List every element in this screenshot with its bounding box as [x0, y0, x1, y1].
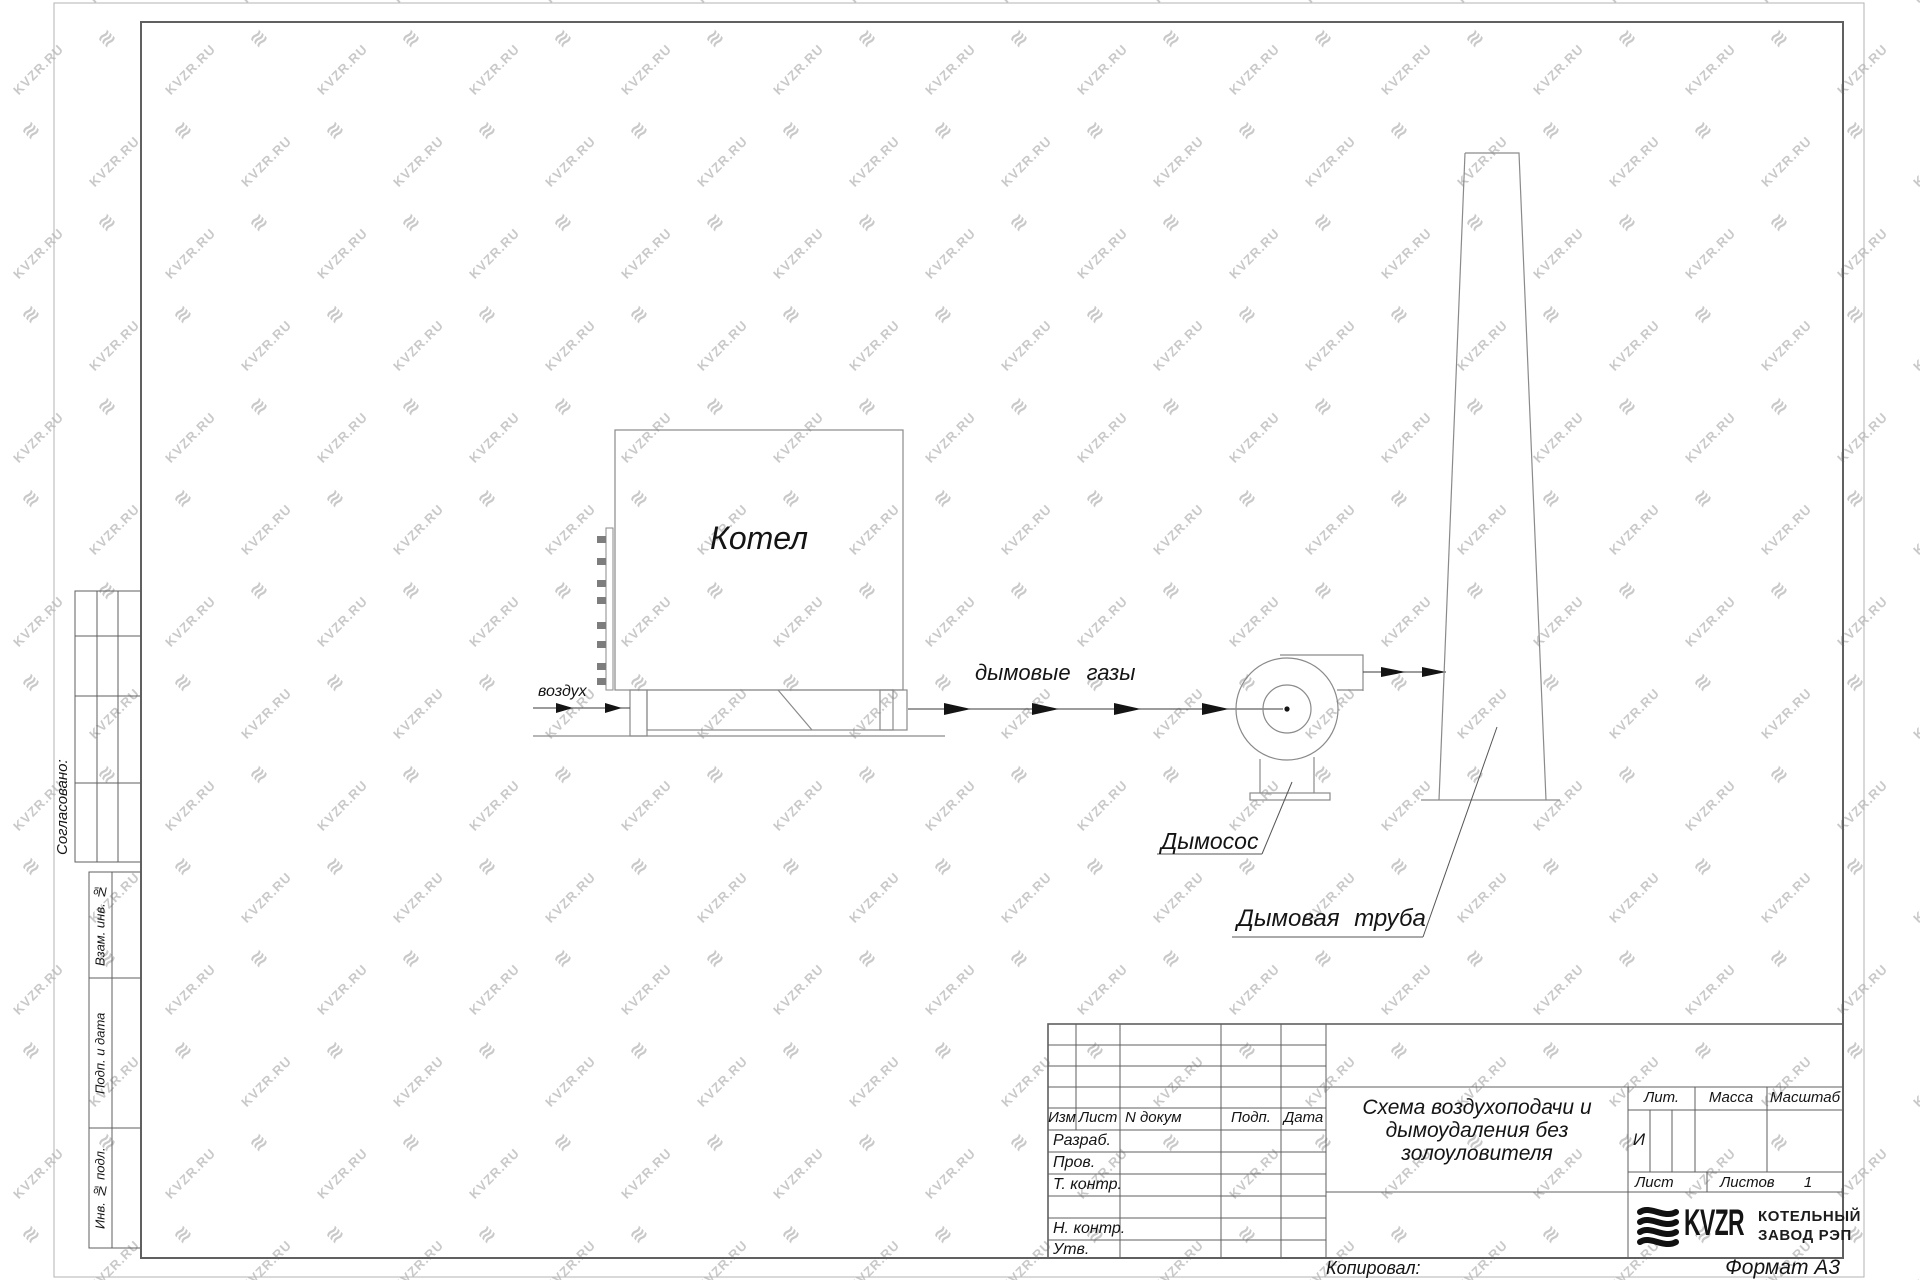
document-title-line2: дымоудаления без [1326, 1119, 1628, 1142]
fan-label: Дымосос [1161, 829, 1258, 853]
kvzr-logo-wordmark: KVZR [1684, 1204, 1744, 1243]
boiler-outline [597, 430, 903, 690]
flue-gas-arrows [908, 703, 1283, 715]
lit-header: Лит. [1628, 1090, 1695, 1106]
flue-gas-label: дымовые газы [975, 661, 1135, 684]
chimney-label: Дымовая труба [1237, 906, 1426, 931]
boiler-support [533, 690, 945, 736]
org-name-line2: ЗАВОД РЭП [1758, 1228, 1852, 1244]
sheet-borders [54, 3, 1864, 1277]
sheets-label: Листов [1720, 1175, 1775, 1191]
lit-value: И [1628, 1131, 1650, 1149]
approved-label: Согласовано: [52, 750, 74, 865]
air-flow-label: воздух [538, 684, 587, 701]
document-title-line1: Схема воздухоподачи и [1326, 1096, 1628, 1119]
titleblock-row-nkontr: Н. контр. [1053, 1221, 1125, 1238]
kvzr-logo-icon [1640, 1210, 1676, 1244]
fan-outline [1236, 655, 1363, 800]
drawing-sheet: KVZR.RU≋KVZR.RU≋KVZR.RU≋KVZR.RU≋KVZR.RU≋… [0, 0, 1920, 1280]
titleblock-col-list: Лист [1076, 1110, 1120, 1126]
sidebar-label-inv-podl: Инв. № подл. [89, 1128, 112, 1248]
copied-by-label: Копировал: [1326, 1259, 1421, 1278]
fan-outlet-arrows [1363, 667, 1446, 677]
sidebar-label-vzam-inv: Взам. инв. № [89, 872, 112, 978]
titleblock-row-razrab: Разраб. [1053, 1133, 1111, 1150]
sheet-label: Лист [1635, 1175, 1674, 1191]
org-name-line1: КОТЕЛЬНЫЙ [1758, 1209, 1861, 1225]
titleblock-col-ndokum: N докум [1125, 1110, 1182, 1126]
document-title: Схема воздухоподачи и дымоудаления без з… [1326, 1096, 1628, 1165]
document-title-line3: золоуловителя [1326, 1142, 1628, 1165]
titleblock-col-izm: Изм [1048, 1110, 1076, 1126]
sheets-value: 1 [1793, 1175, 1823, 1191]
titleblock-row-prov: Пров. [1053, 1155, 1095, 1172]
mass-header: Масса [1695, 1090, 1767, 1106]
titleblock-row-tkontr: Т. контр. [1053, 1177, 1122, 1194]
chimney-outline [1421, 153, 1560, 800]
scale-header: Масштаб [1767, 1090, 1843, 1106]
format-label: Формат А3 [1670, 1257, 1840, 1279]
drawing-linework [0, 0, 1920, 1280]
sidebar-label-podp-data: Подп. и дата [89, 978, 112, 1128]
air-flow-arrow [533, 703, 630, 713]
titleblock-col-podp: Подп. [1221, 1110, 1281, 1126]
titleblock-row-utv: Утв. [1053, 1242, 1089, 1259]
boiler-label: Котел [615, 522, 903, 556]
titleblock-col-data: Дата [1281, 1110, 1326, 1126]
